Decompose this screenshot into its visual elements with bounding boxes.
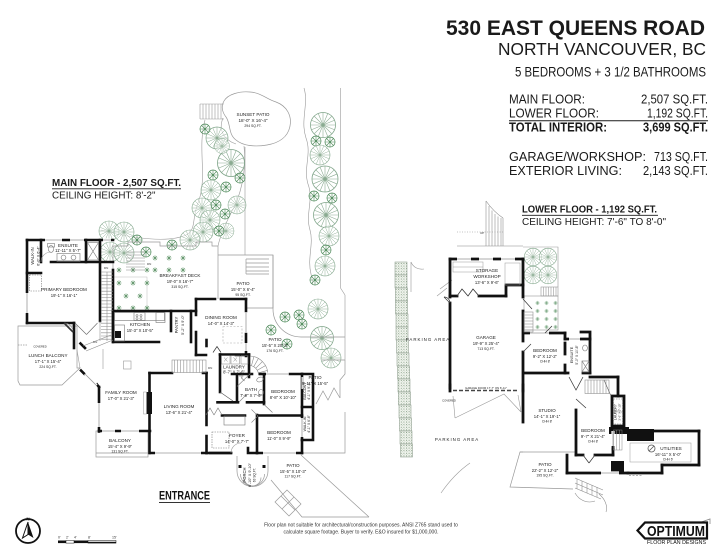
svg-text:63 SQ.FT.: 63 SQ.FT. bbox=[253, 468, 257, 482]
svg-text:294 SQ.FT.: 294 SQ.FT. bbox=[244, 124, 261, 128]
svg-text:WALK-IN: WALK-IN bbox=[30, 247, 35, 264]
svg-text:MAIN FLOOR - 2,507 SQ.FT.: MAIN FLOOR - 2,507 SQ.FT. bbox=[52, 177, 181, 189]
svg-text:EXTERIOR LIVING:: EXTERIOR LIVING: bbox=[509, 163, 622, 178]
svg-text:PRIMARY BEDROOM: PRIMARY BEDROOM bbox=[41, 287, 87, 292]
svg-text:LUNCH BALCONY: LUNCH BALCONY bbox=[28, 353, 67, 358]
svg-text:LOWER FLOOR:: LOWER FLOOR: bbox=[509, 106, 599, 121]
svg-text:4'-1" X 6'-6": 4'-1" X 6'-6" bbox=[307, 414, 311, 432]
svg-text:13'-6" X 9'-6": 13'-6" X 9'-6" bbox=[475, 280, 500, 285]
svg-text:BEDROOM: BEDROOM bbox=[533, 348, 557, 353]
svg-text:15'-4" X 9'-9": 15'-4" X 9'-9" bbox=[108, 444, 133, 449]
svg-text:15'-5" X 20'-3": 15'-5" X 20'-3" bbox=[262, 343, 289, 348]
svg-text:14'-0" X 14'-3": 14'-0" X 14'-3" bbox=[208, 321, 235, 326]
svg-text:PATIO: PATIO bbox=[286, 463, 300, 468]
svg-text:9'-2" X 12'-2": 9'-2" X 12'-2" bbox=[533, 354, 558, 359]
svg-text:LOWER FLOOR - 1,192 SQ.FT.: LOWER FLOOR - 1,192 SQ.FT. bbox=[522, 204, 657, 216]
svg-text:6'-0" X 6'-4": 6'-0" X 6'-4" bbox=[37, 245, 41, 265]
svg-text:17'-1" X 15'-4": 17'-1" X 15'-4" bbox=[35, 359, 62, 364]
svg-text:ENTRANCE: ENTRANCE bbox=[159, 491, 210, 503]
svg-text:MAIN FLOOR:: MAIN FLOOR: bbox=[509, 92, 585, 107]
svg-text:BEDROOM: BEDROOM bbox=[271, 389, 295, 394]
svg-text:315 SQ.FT.: 315 SQ.FT. bbox=[171, 285, 188, 289]
svg-text:15'-3" X 10'-5": 15'-3" X 10'-5" bbox=[127, 328, 154, 333]
svg-text:0': 0' bbox=[58, 536, 61, 540]
svg-text:Floor plan not suitable for ar: Floor plan not suitable for architectura… bbox=[264, 523, 458, 529]
svg-text:COVERED: COVERED bbox=[33, 345, 46, 349]
svg-text:713 SQ.FT.: 713 SQ.FT. bbox=[654, 149, 708, 164]
svg-text:FAMILY ROOM: FAMILY ROOM bbox=[105, 390, 137, 395]
svg-text:PARKING AREA: PARKING AREA bbox=[435, 437, 479, 442]
svg-text:NORTH VANCOUVER, BC: NORTH VANCOUVER, BC bbox=[498, 39, 706, 59]
svg-text:95 SQ.FT.: 95 SQ.FT. bbox=[235, 293, 250, 297]
svg-text:PATIO: PATIO bbox=[308, 375, 322, 380]
svg-text:4'-1" X 9'-6": 4'-1" X 9'-6" bbox=[307, 381, 311, 399]
svg-text:5'-2" X 9'-0": 5'-2" X 9'-0" bbox=[181, 314, 185, 334]
svg-text:CHH 8': CHH 8' bbox=[540, 360, 551, 364]
svg-text:8'-8" X 10'-10": 8'-8" X 10'-10" bbox=[270, 395, 297, 400]
svg-text:DN: DN bbox=[208, 366, 212, 370]
svg-text:15'-5" X 10'-3": 15'-5" X 10'-3" bbox=[280, 469, 307, 474]
svg-text:GARAGE DOOR 17'-7" ON 6'-11": GARAGE DOOR 17'-7" ON 6'-11" bbox=[465, 386, 507, 390]
svg-text:OPTIMUM: OPTIMUM bbox=[647, 523, 705, 540]
svg-text:DN: DN bbox=[147, 262, 151, 266]
svg-text:8'-7" X 7'-6": 8'-7" X 7'-6" bbox=[223, 370, 245, 375]
svg-text:BEDROOM: BEDROOM bbox=[267, 430, 291, 435]
svg-text:195 SQ.FT.: 195 SQ.FT. bbox=[536, 474, 553, 478]
svg-text:CEILING HEIGHT: 8'-2": CEILING HEIGHT: 8'-2" bbox=[52, 190, 156, 202]
svg-text:CHH 8': CHH 8' bbox=[588, 440, 599, 444]
svg-text:5'-0" X 10'-8": 5'-0" X 10'-8" bbox=[575, 344, 579, 364]
svg-text:KITCHEN: KITCHEN bbox=[130, 322, 150, 327]
svg-text:GARAGE/WORKSHOP:: GARAGE/WORKSHOP: bbox=[509, 149, 646, 164]
svg-text:PATIO: PATIO bbox=[268, 337, 282, 342]
svg-text:CHH 8': CHH 8' bbox=[542, 420, 553, 424]
svg-text:14'-1" X 19'-1": 14'-1" X 19'-1" bbox=[534, 414, 561, 419]
svg-text:TOTAL INTERIOR:: TOTAL INTERIOR: bbox=[509, 120, 607, 135]
svg-text:15'-0" X 6'-4": 15'-0" X 6'-4" bbox=[231, 287, 256, 292]
svg-text:8': 8' bbox=[88, 536, 91, 540]
svg-text:16'-11" X 5'-0": 16'-11" X 5'-0" bbox=[655, 452, 682, 457]
svg-text:BALCONY: BALCONY bbox=[109, 438, 131, 443]
svg-text:14'-0" X 7'-7": 14'-0" X 7'-7" bbox=[225, 439, 250, 444]
svg-text:19'-1" X 16'-1": 19'-1" X 16'-1" bbox=[51, 293, 78, 298]
svg-text:3'-6" X 7'-10": 3'-6" X 7'-10" bbox=[618, 403, 622, 420]
svg-text:STUDIO: STUDIO bbox=[538, 408, 556, 413]
svg-text:WORKSHOP: WORKSHOP bbox=[473, 274, 500, 279]
svg-text:131 SQ.FT.: 131 SQ.FT. bbox=[111, 450, 128, 454]
svg-text:3,699 SQ.FT.: 3,699 SQ.FT. bbox=[643, 120, 708, 135]
svg-text:COVERED: COVERED bbox=[442, 399, 456, 403]
svg-text:PATIO: PATIO bbox=[538, 462, 552, 467]
svg-text:UP: UP bbox=[480, 231, 484, 235]
svg-text:7'-9" X 7'-6": 7'-9" X 7'-6" bbox=[240, 393, 262, 398]
svg-text:224 SQ.FT.: 224 SQ.FT. bbox=[39, 365, 56, 369]
svg-text:19'-9" X 25'-4": 19'-9" X 25'-4" bbox=[473, 341, 500, 346]
svg-text:11'-11" X 5'-7": 11'-11" X 5'-7" bbox=[55, 248, 81, 253]
svg-text:1,192 SQ.FT.: 1,192 SQ.FT. bbox=[647, 106, 708, 121]
svg-text:CHH 6': CHH 6' bbox=[663, 458, 674, 462]
svg-text:N: N bbox=[26, 517, 29, 522]
svg-text:LIVING ROOM: LIVING ROOM bbox=[164, 404, 195, 409]
svg-text:FLOOR PLAN DESIGNS: FLOOR PLAN DESIGNS bbox=[647, 540, 706, 546]
svg-text:15': 15' bbox=[112, 536, 117, 540]
svg-text:BATH: BATH bbox=[245, 387, 257, 392]
svg-text:STORAGE: STORAGE bbox=[476, 268, 498, 273]
svg-text:13'-6" X 21'-4": 13'-6" X 21'-4" bbox=[166, 410, 193, 415]
svg-text:5 BEDROOMS + 3 1/2 BATHROOMS: 5 BEDROOMS + 3 1/2 BATHROOMS bbox=[515, 64, 706, 80]
svg-text:530 EAST QUEENS ROAD: 530 EAST QUEENS ROAD bbox=[446, 16, 705, 40]
svg-text:CEILING HEIGHT: 7'-6" TO 8'-0": CEILING HEIGHT: 7'-6" TO 8'-0" bbox=[522, 216, 666, 228]
svg-text:18'-0" X 16'-4": 18'-0" X 16'-4" bbox=[238, 118, 267, 123]
svg-text:ENSUITE: ENSUITE bbox=[570, 346, 574, 363]
svg-text:9'-7" X 21'-4": 9'-7" X 21'-4" bbox=[581, 434, 606, 439]
svg-text:17'-0" X 21'-3": 17'-0" X 21'-3" bbox=[108, 396, 135, 401]
svg-text:FOYER: FOYER bbox=[229, 433, 246, 438]
svg-text:713 SQ.FT.: 713 SQ.FT. bbox=[477, 347, 494, 351]
svg-text:PORCH: PORCH bbox=[242, 467, 247, 482]
svg-text:SUNSET PATIO: SUNSET PATIO bbox=[237, 112, 270, 117]
svg-text:BREAKFAST DECK: BREAKFAST DECK bbox=[159, 273, 201, 278]
svg-text:BEDROOM: BEDROOM bbox=[581, 428, 605, 433]
svg-text:19'-0" X 16'-7": 19'-0" X 16'-7" bbox=[167, 279, 194, 284]
svg-text:UTILITIES: UTILITIES bbox=[660, 446, 681, 451]
svg-text:DINING ROOM: DINING ROOM bbox=[205, 315, 237, 320]
svg-text:11'-0" X 9'-9": 11'-0" X 9'-9" bbox=[267, 436, 291, 441]
svg-text:GARAGE: GARAGE bbox=[476, 335, 496, 340]
svg-text:117 SQ.FT.: 117 SQ.FT. bbox=[285, 475, 302, 479]
svg-text:PATIO: PATIO bbox=[236, 281, 250, 286]
svg-text:6'-10" X 9'-10": 6'-10" X 9'-10" bbox=[248, 462, 252, 487]
svg-text:calculate square footage. Buye: calculate square footage. Buyer to verif… bbox=[284, 530, 439, 536]
svg-text:PANTRY: PANTRY bbox=[174, 316, 179, 333]
svg-text:PARKING AREA: PARKING AREA bbox=[406, 337, 450, 342]
svg-text:176 SQ.FT.: 176 SQ.FT. bbox=[266, 349, 283, 353]
svg-text:DN: DN bbox=[104, 266, 108, 270]
svg-text:2,143 SQ.FT.: 2,143 SQ.FT. bbox=[643, 163, 708, 178]
svg-text:2,507 SQ.FT.: 2,507 SQ.FT. bbox=[641, 92, 708, 107]
svg-text:4': 4' bbox=[74, 536, 77, 540]
svg-text:22'-2" X 12'-2": 22'-2" X 12'-2" bbox=[532, 468, 559, 473]
svg-text:2': 2' bbox=[66, 536, 69, 540]
